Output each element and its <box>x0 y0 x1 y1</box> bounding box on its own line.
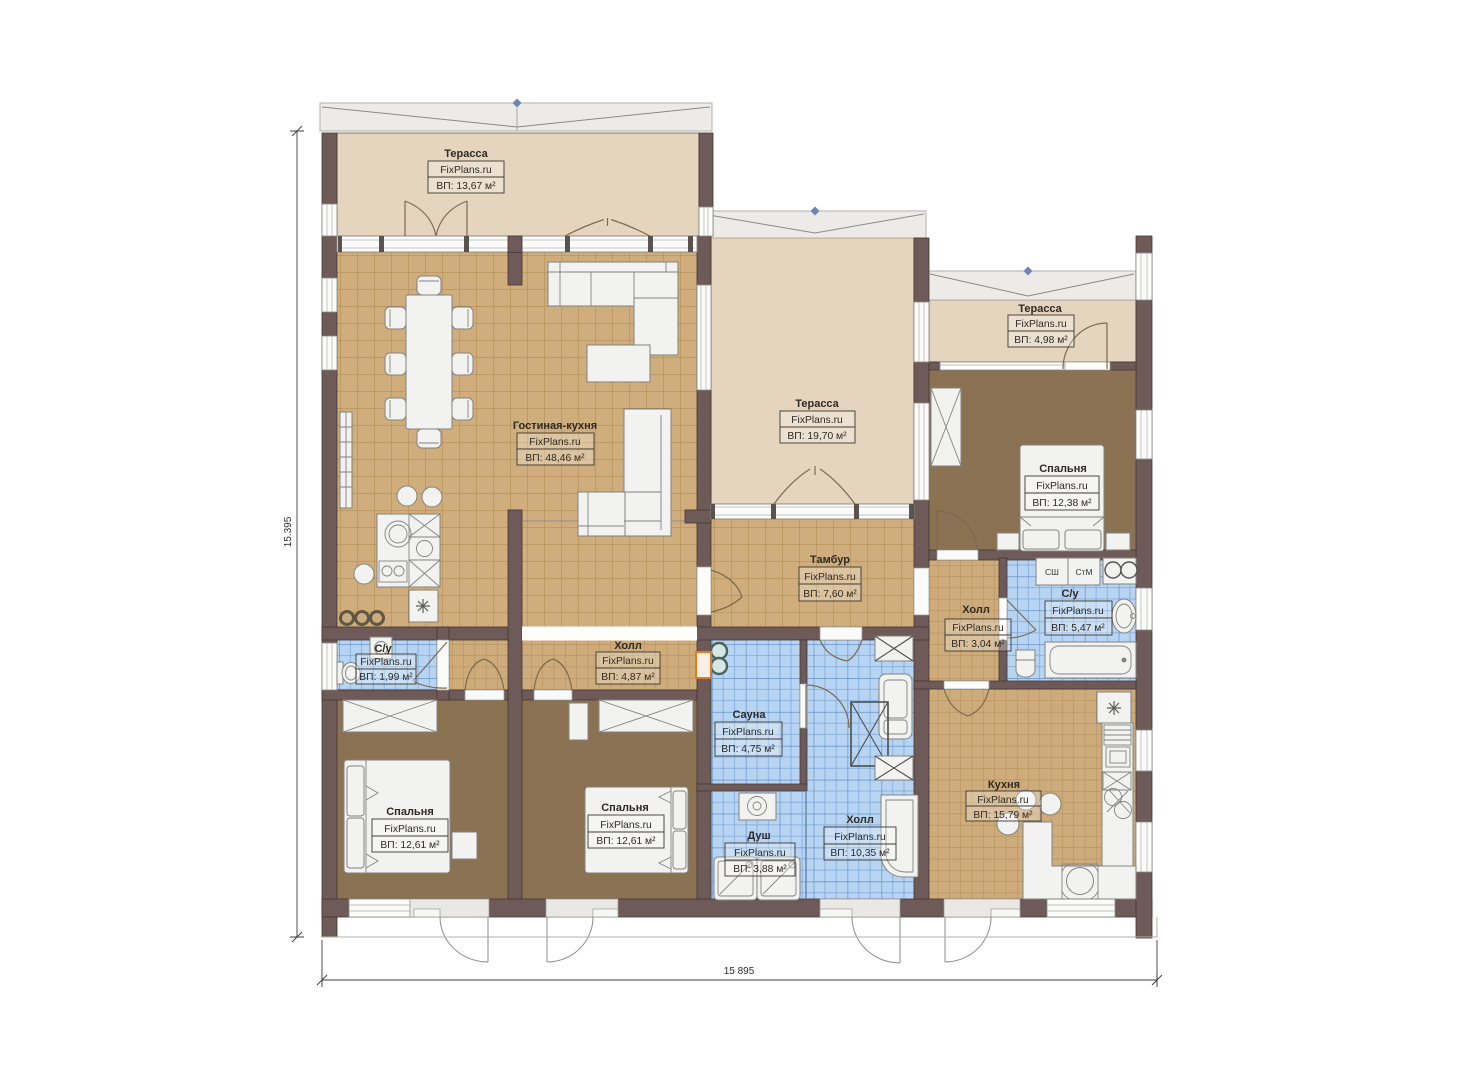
svg-text:FixPlans.ru: FixPlans.ru <box>734 848 786 859</box>
svg-text:FixPlans.ru: FixPlans.ru <box>529 437 581 448</box>
svg-text:Кухня: Кухня <box>988 779 1020 791</box>
svg-text:Терасса: Терасса <box>795 398 839 410</box>
svg-text:С/у: С/у <box>1061 588 1079 600</box>
svg-text:Гостиная-кухня: Гостиная-кухня <box>513 420 597 432</box>
svg-text:ВП: 1,99 м²: ВП: 1,99 м² <box>359 672 413 683</box>
svg-text:FixPlans.ru: FixPlans.ru <box>440 165 492 176</box>
svg-text:ВП: 4,75 м²: ВП: 4,75 м² <box>721 744 775 755</box>
svg-text:Душ: Душ <box>747 830 770 842</box>
svg-text:ВП: 48,46 м²: ВП: 48,46 м² <box>525 453 585 464</box>
svg-text:ВП: 12,61 м²: ВП: 12,61 м² <box>380 840 440 851</box>
svg-text:ВП: 4,87 м²: ВП: 4,87 м² <box>601 672 655 683</box>
svg-text:ВП: 12,61 м²: ВП: 12,61 м² <box>596 836 656 847</box>
svg-text:ВП: 12,38 м²: ВП: 12,38 м² <box>1032 498 1092 509</box>
svg-text:ВП: 13,67 м²: ВП: 13,67 м² <box>436 181 496 192</box>
svg-text:Холл: Холл <box>846 814 874 826</box>
svg-text:ВП: 3,04 м²: ВП: 3,04 м² <box>951 639 1005 650</box>
svg-text:FixPlans.ru: FixPlans.ru <box>952 623 1004 634</box>
svg-text:Холл: Холл <box>962 604 990 616</box>
svg-text:FixPlans.ru: FixPlans.ru <box>1052 606 1104 617</box>
svg-text:Терасса: Терасса <box>1018 303 1062 315</box>
svg-text:FixPlans.ru: FixPlans.ru <box>1015 319 1067 330</box>
svg-text:FixPlans.ru: FixPlans.ru <box>722 727 774 738</box>
svg-text:ВП: 10,35 м²: ВП: 10,35 м² <box>830 848 890 859</box>
svg-text:Сауна: Сауна <box>732 709 766 721</box>
svg-text:15.395: 15.395 <box>283 516 294 547</box>
svg-text:FixPlans.ru: FixPlans.ru <box>791 415 843 426</box>
svg-text:ВП: 19,70 м²: ВП: 19,70 м² <box>787 431 847 442</box>
svg-text:ВП: 5,47 м²: ВП: 5,47 м² <box>1051 623 1105 634</box>
svg-text:15 895: 15 895 <box>724 966 755 977</box>
svg-text:FixPlans.ru: FixPlans.ru <box>1036 481 1088 492</box>
svg-text:ВП: 7,60 м²: ВП: 7,60 м² <box>803 589 857 600</box>
svg-text:Спальня: Спальня <box>386 806 434 818</box>
svg-text:FixPlans.ru: FixPlans.ru <box>834 832 886 843</box>
svg-text:FixPlans.ru: FixPlans.ru <box>600 820 652 831</box>
svg-text:ВП: 3,88 м²: ВП: 3,88 м² <box>733 864 787 875</box>
svg-text:FixPlans.ru: FixPlans.ru <box>360 657 412 668</box>
svg-text:С/у: С/у <box>374 643 392 655</box>
svg-text:ВП: 15,79 м²: ВП: 15,79 м² <box>973 810 1033 821</box>
svg-text:ВП: 4,98 м²: ВП: 4,98 м² <box>1014 335 1068 346</box>
svg-text:Терасса: Терасса <box>444 148 488 160</box>
svg-text:FixPlans.ru: FixPlans.ru <box>977 795 1029 806</box>
svg-text:FixPlans.ru: FixPlans.ru <box>384 824 436 835</box>
svg-text:Спальня: Спальня <box>601 802 649 814</box>
svg-text:FixPlans.ru: FixPlans.ru <box>602 656 654 667</box>
svg-text:Холл: Холл <box>614 640 642 652</box>
svg-text:СШ: СШ <box>1045 567 1059 577</box>
svg-text:СтМ: СтМ <box>1075 567 1092 577</box>
svg-text:Тамбур: Тамбур <box>810 554 850 566</box>
svg-text:Спальня: Спальня <box>1039 463 1087 475</box>
svg-text:FixPlans.ru: FixPlans.ru <box>804 572 856 583</box>
